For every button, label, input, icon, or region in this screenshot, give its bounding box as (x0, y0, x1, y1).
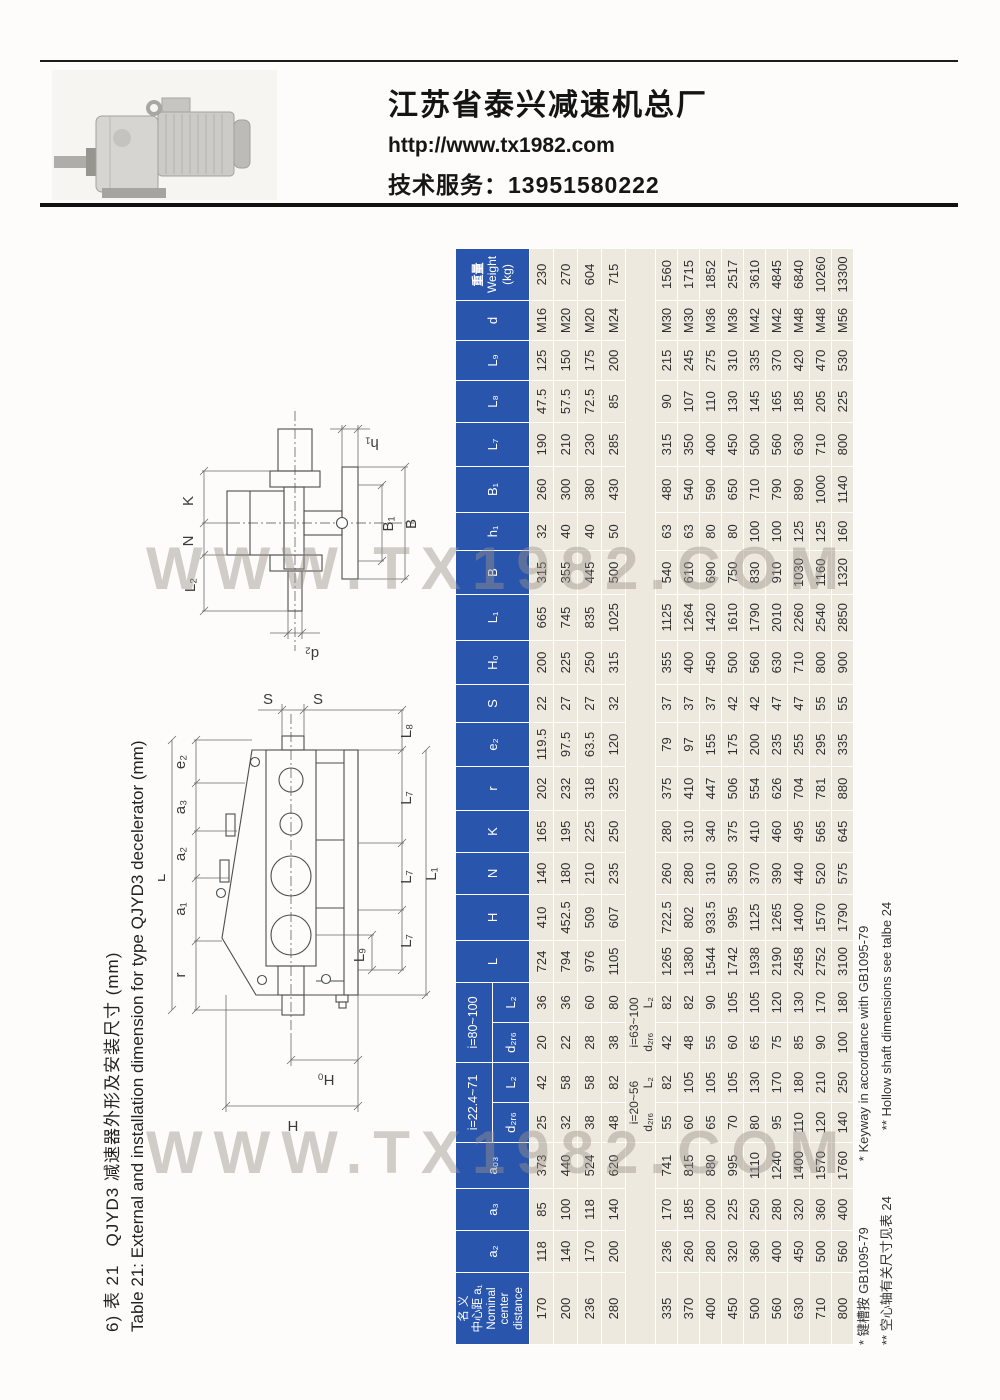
data-cell: 620 (602, 1143, 626, 1189)
data-cell: 1570 (810, 894, 832, 940)
data-cell: 560 (744, 640, 766, 684)
data-cell: 610 (678, 550, 700, 594)
data-cell: 65 (744, 1022, 766, 1062)
data-cell: 260 (656, 852, 678, 894)
data-cell: 200 (744, 722, 766, 766)
dim-label-K: K (180, 496, 197, 506)
data-cell: 110 (788, 1103, 810, 1143)
data-cell: 1030 (788, 550, 810, 594)
data-cell: 118 (578, 1189, 602, 1231)
column-header: H (456, 894, 530, 940)
data-cell: M36 (700, 300, 722, 340)
data-cell: 626 (766, 766, 788, 810)
data-cell: 802 (678, 894, 700, 940)
data-cell: 310 (678, 810, 700, 852)
data-cell: 440 (554, 1143, 578, 1189)
data-cell: 650 (722, 466, 744, 512)
data-cell: 125 (788, 512, 810, 550)
service-phone-label: 技术服务： (388, 172, 508, 198)
data-cell: 36 (530, 982, 554, 1022)
footnote-1: * 键槽按 GB1095-79* Keyway in accordance wi… (853, 645, 872, 1345)
data-cell: 794 (554, 940, 578, 982)
row-header-cell: 170 (530, 1273, 554, 1345)
data-cell: 65 (700, 1103, 722, 1143)
company-block: 江苏省泰兴减速机总厂 http://www.tx1982.com 技术服务：13… (388, 80, 948, 200)
data-cell: 900 (832, 640, 854, 684)
data-cell: 1125 (744, 894, 766, 940)
data-cell: 360 (744, 1231, 766, 1273)
data-cell: 235 (602, 852, 626, 894)
data-cell: 55 (700, 1022, 722, 1062)
data-cell: 445 (578, 550, 602, 594)
data-cell: 575 (832, 852, 854, 894)
data-cell: 80 (700, 512, 722, 550)
data-cell: 55 (810, 684, 832, 722)
gearmotor-photo (52, 70, 277, 200)
data-cell: 400 (832, 1189, 854, 1231)
data-cell: 335 (744, 340, 766, 380)
data-cell: 4845 (766, 248, 788, 300)
data-cell: 37 (678, 684, 700, 722)
data-cell: 722.5 (656, 894, 678, 940)
data-cell: 22 (530, 684, 554, 722)
data-cell: 340 (700, 810, 722, 852)
data-cell: 140 (602, 1189, 626, 1231)
data-cell: 2458 (788, 940, 810, 982)
data-cell: 590 (700, 466, 722, 512)
data-cell: 2517 (722, 248, 744, 300)
data-cell: 410 (678, 766, 700, 810)
data-cell: 20 (530, 1022, 554, 1062)
data-cell: M24 (602, 300, 626, 340)
table-caption-en: Table 21: External and installation dime… (128, 462, 148, 1332)
data-cell: 3100 (832, 940, 854, 982)
data-cell: 995 (722, 894, 744, 940)
company-name: 江苏省泰兴减速机总厂 (388, 80, 948, 124)
dim-label-L8: L₈ (398, 724, 415, 739)
data-cell: 350 (678, 422, 700, 466)
data-cell: 225 (832, 380, 854, 422)
data-cell: 781 (810, 766, 832, 810)
data-cell: 410 (530, 894, 554, 940)
data-cell: 524 (578, 1143, 602, 1189)
data-cell: 60 (678, 1103, 700, 1143)
data-cell: 118 (530, 1231, 554, 1273)
column-header: B (456, 550, 530, 594)
data-cell: 280 (678, 852, 700, 894)
data-cell: 245 (678, 340, 700, 380)
data-cell: 310 (700, 852, 722, 894)
dim-label-S1: S (263, 691, 273, 708)
data-cell: M48 (810, 300, 832, 340)
data-cell: 100 (744, 512, 766, 550)
data-cell: 350 (722, 852, 744, 894)
data-cell: 410 (744, 810, 766, 852)
separator-group-cell: i=63~100d₂ᵣ₆L₂ (626, 982, 656, 1062)
data-cell: 85 (788, 1022, 810, 1062)
data-cell: 200 (602, 1231, 626, 1273)
data-cell: 500 (810, 1231, 832, 1273)
data-cell: 95 (766, 1103, 788, 1143)
data-cell: 85 (602, 380, 626, 422)
data-cell: 270 (554, 248, 578, 300)
data-cell: 1380 (678, 940, 700, 982)
separator-cell (626, 248, 656, 982)
dim-label-L7a: L₇ (398, 791, 415, 805)
ratio-group-header: i=80~100 (456, 982, 493, 1062)
data-cell: 185 (678, 1189, 700, 1231)
column-header: S (456, 684, 530, 722)
data-cell: 506 (722, 766, 744, 810)
data-cell: 125 (530, 340, 554, 380)
corner-header: 名 义中心距 a₁Nominalcenterdistance (456, 1273, 530, 1345)
data-cell: 37 (656, 684, 678, 722)
data-cell: 75 (766, 1022, 788, 1062)
weight-header: 重量Weight(kg) (456, 248, 530, 300)
data-cell: 470 (810, 340, 832, 380)
data-cell: 460 (766, 810, 788, 852)
data-cell: 250 (578, 640, 602, 684)
data-cell: 225 (554, 640, 578, 684)
row-header-cell: 710 (810, 1273, 832, 1345)
data-cell: 1420 (700, 594, 722, 640)
data-cell: 1400 (788, 1143, 810, 1189)
data-cell: 910 (766, 550, 788, 594)
ratio-group-header: i=22.4~71 (456, 1062, 493, 1142)
data-cell: 70 (722, 1103, 744, 1143)
data-cell: 47 (788, 684, 810, 722)
row-header-cell: 450 (722, 1273, 744, 1345)
data-cell: 480 (656, 466, 678, 512)
dim-label-d2: d₂ (305, 645, 319, 662)
data-cell: 1000 (810, 466, 832, 512)
data-cell: 47 (766, 684, 788, 722)
company-logo (52, 70, 277, 200)
dim-label-B1: B₁ (380, 516, 397, 531)
data-cell: 60 (578, 982, 602, 1022)
data-cell: 665 (530, 594, 554, 640)
data-cell: 630 (766, 640, 788, 684)
data-cell: M20 (578, 300, 602, 340)
data-cell: 38 (578, 1103, 602, 1143)
data-cell: 1852 (700, 248, 722, 300)
data-cell: 830 (744, 550, 766, 594)
data-cell: 320 (788, 1189, 810, 1231)
data-cell: 933.5 (700, 894, 722, 940)
data-cell: 190 (530, 422, 554, 466)
data-cell: 400 (700, 422, 722, 466)
data-cell: 130 (744, 1062, 766, 1102)
dim-label-L7c: L₇ (398, 934, 415, 948)
data-cell: 604 (578, 248, 602, 300)
data-cell: 320 (722, 1231, 744, 1273)
data-cell: 57.5 (554, 380, 578, 422)
dim-label-a2: a₂ (172, 847, 189, 861)
data-cell: 100 (832, 1022, 854, 1062)
data-cell: 1790 (744, 594, 766, 640)
data-cell: 1320 (832, 550, 854, 594)
footnote-1-zh: * 键槽按 GB1095-79 (856, 1227, 871, 1345)
data-cell: 318 (578, 766, 602, 810)
data-cell: 315 (530, 550, 554, 594)
header-rule-top (40, 60, 958, 62)
data-cell: 880 (832, 766, 854, 810)
column-header: L (456, 940, 530, 982)
data-cell: 205 (810, 380, 832, 422)
data-cell: 58 (578, 1062, 602, 1102)
data-cell: 140 (832, 1103, 854, 1143)
data-cell: 1105 (602, 940, 626, 982)
data-cell: 380 (578, 466, 602, 512)
data-cell: 275 (700, 340, 722, 380)
data-cell: 315 (602, 640, 626, 684)
data-cell: 565 (810, 810, 832, 852)
data-cell: 630 (788, 422, 810, 466)
data-cell: 22 (554, 1022, 578, 1062)
data-cell: 63.5 (578, 722, 602, 766)
data-cell: 1790 (832, 894, 854, 940)
data-cell: 180 (554, 852, 578, 894)
column-header: a₀₃ (456, 1143, 530, 1189)
data-cell: 47.5 (530, 380, 554, 422)
data-cell: 155 (700, 722, 722, 766)
data-cell: 1025 (602, 594, 626, 640)
data-cell: 230 (578, 422, 602, 466)
data-cell: 800 (832, 422, 854, 466)
data-cell: 554 (744, 766, 766, 810)
data-cell: 170 (766, 1062, 788, 1102)
data-cell: 710 (810, 422, 832, 466)
data-cell: 295 (810, 722, 832, 766)
data-cell: 710 (744, 466, 766, 512)
column-header: L₉ (456, 340, 530, 380)
dim-label-B: B (403, 519, 420, 529)
data-cell: 200 (530, 640, 554, 684)
data-cell: 100 (766, 512, 788, 550)
data-cell: 540 (678, 466, 700, 512)
data-cell: M30 (656, 300, 678, 340)
data-cell: 165 (766, 380, 788, 422)
data-cell: 180 (832, 982, 854, 1022)
data-cell: 210 (578, 852, 602, 894)
data-cell: 37 (700, 684, 722, 722)
dim-label-L7b: L₇ (398, 870, 415, 884)
data-cell: 375 (656, 766, 678, 810)
data-cell: 500 (722, 640, 744, 684)
data-cell: 170 (656, 1189, 678, 1231)
data-cell: 38 (602, 1022, 626, 1062)
data-cell: 704 (788, 766, 810, 810)
data-cell: M42 (766, 300, 788, 340)
data-cell: 1240 (766, 1143, 788, 1189)
data-cell: M16 (530, 300, 554, 340)
data-cell: 995 (722, 1143, 744, 1189)
data-cell: 130 (722, 380, 744, 422)
data-cell: 50 (602, 512, 626, 550)
dim-label-L1: L₁ (423, 867, 440, 880)
data-cell: 815 (678, 1143, 700, 1189)
data-cell: 447 (700, 766, 722, 810)
data-cell: 540 (656, 550, 678, 594)
data-cell: 450 (788, 1231, 810, 1273)
row-header-cell: 200 (554, 1273, 578, 1345)
data-cell: 280 (656, 810, 678, 852)
dimension-table-area: 名 义中心距 a₁Nominalcenterdistancea₂a₃a₀₃i=2… (455, 250, 852, 1345)
data-cell: 835 (578, 594, 602, 640)
data-cell: 1140 (832, 466, 854, 512)
data-cell: 225 (722, 1189, 744, 1231)
data-cell: 119.5 (530, 722, 554, 766)
data-cell: 27 (554, 684, 578, 722)
row-header-cell: 400 (700, 1273, 722, 1345)
data-cell: 55 (832, 684, 854, 722)
data-cell: 175 (722, 722, 744, 766)
dim-label-a1: a₁ (172, 902, 189, 915)
data-cell: 32 (530, 512, 554, 550)
data-cell: 355 (656, 640, 678, 684)
data-cell: 724 (530, 940, 554, 982)
data-cell: 55 (656, 1103, 678, 1143)
data-cell: 48 (602, 1103, 626, 1143)
data-cell: 310 (722, 340, 744, 380)
data-cell: 690 (700, 550, 722, 594)
data-cell: 236 (656, 1231, 678, 1273)
data-cell: 2190 (766, 940, 788, 982)
data-cell: 280 (700, 1231, 722, 1273)
data-cell: 63 (678, 512, 700, 550)
data-cell: 100 (554, 1189, 578, 1231)
data-cell: 140 (530, 852, 554, 894)
sub-column-header: d₂ᵣ₆ (493, 1103, 530, 1143)
data-cell: M42 (744, 300, 766, 340)
data-cell: 495 (788, 810, 810, 852)
footnote-2-en: ** Hollow shaft dimensions see talbe 24 (879, 902, 894, 1130)
data-cell: M36 (722, 300, 744, 340)
data-cell: 355 (554, 550, 578, 594)
data-cell: 28 (578, 1022, 602, 1062)
dim-label-a3: a₃ (172, 800, 189, 814)
header-rule-bottom (40, 203, 958, 207)
data-cell: 715 (602, 248, 626, 300)
data-cell: 360 (810, 1189, 832, 1231)
data-cell: 1560 (656, 248, 678, 300)
data-cell: 500 (744, 422, 766, 466)
row-header-cell: 800 (832, 1273, 854, 1345)
service-phone-number: 13951580222 (508, 172, 660, 198)
data-cell: 105 (744, 982, 766, 1022)
data-cell: 2850 (832, 594, 854, 640)
data-cell: 42 (722, 684, 744, 722)
data-cell: 27 (578, 684, 602, 722)
data-cell: 90 (810, 1022, 832, 1062)
data-cell: 232 (554, 766, 578, 810)
side-view-drawing: S S e₂ a₃ a₂ a₁ r L L₈ L₇ L₇ L₇ L₁ L₉ H₀… (158, 688, 460, 1158)
data-cell: 800 (810, 640, 832, 684)
data-cell: 120 (766, 982, 788, 1022)
column-header: L₈ (456, 380, 530, 422)
data-cell: 80 (722, 512, 744, 550)
data-cell: 80 (744, 1103, 766, 1143)
data-cell: M30 (678, 300, 700, 340)
data-cell: 180 (788, 1062, 810, 1102)
data-cell: M20 (554, 300, 578, 340)
data-cell: 420 (788, 340, 810, 380)
row-header-cell: 280 (602, 1273, 626, 1345)
data-cell: 400 (766, 1231, 788, 1273)
data-cell: 225 (578, 810, 602, 852)
data-cell: 13300 (832, 248, 854, 300)
data-cell: 255 (788, 722, 810, 766)
column-header: e₂ (456, 722, 530, 766)
data-cell: 200 (602, 340, 626, 380)
column-header: L₇ (456, 422, 530, 466)
data-cell: 375 (722, 810, 744, 852)
data-cell: 110 (700, 380, 722, 422)
column-header: h₁ (456, 512, 530, 550)
data-cell: 202 (530, 766, 554, 810)
row-header-cell: 335 (656, 1273, 678, 1345)
dim-label-H0: H₀ (317, 1071, 334, 1088)
data-cell: 175 (578, 340, 602, 380)
data-cell: 1265 (656, 940, 678, 982)
dim-label-N: N (180, 536, 197, 547)
data-cell: 130 (788, 982, 810, 1022)
data-cell: 72.5 (578, 380, 602, 422)
dimension-table: 名 义中心距 a₁Nominalcenterdistancea₂a₃a₀₃i=2… (455, 248, 854, 1345)
data-cell: 90 (656, 380, 678, 422)
table-caption: 6) 表 21 QJYD3 减速器外形及安装尺寸 (mm) Table 21: … (98, 462, 148, 1332)
data-cell: 260 (678, 1231, 700, 1273)
data-cell: 82 (602, 1062, 626, 1102)
data-cell: 63 (656, 512, 678, 550)
data-cell: 25 (530, 1103, 554, 1143)
data-cell: 373 (530, 1143, 554, 1189)
data-cell: 165 (530, 810, 554, 852)
dim-label-L: L (158, 874, 169, 882)
column-header: K (456, 810, 530, 852)
data-cell: 1938 (744, 940, 766, 982)
data-cell: 82 (656, 982, 678, 1022)
column-header: r (456, 766, 530, 810)
data-cell: 32 (554, 1103, 578, 1143)
data-cell: 215 (656, 340, 678, 380)
table-caption-zh: 6) 表 21 QJYD3 减速器外形及安装尺寸 (mm) (98, 462, 123, 1332)
data-cell: 82 (656, 1062, 678, 1102)
data-cell: 250 (602, 810, 626, 852)
column-header: N (456, 852, 530, 894)
service-phone: 技术服务：13951580222 (388, 166, 948, 200)
data-cell: 97 (678, 722, 700, 766)
data-cell: 85 (530, 1189, 554, 1231)
data-cell: 36 (554, 982, 578, 1022)
data-cell: 170 (810, 982, 832, 1022)
sub-column-header: L₂ (493, 1062, 530, 1102)
data-cell: 105 (700, 1062, 722, 1102)
separator-group-cell: i=20~56d₂ᵣ₆L₂ (626, 1062, 656, 1142)
data-cell: 97.5 (554, 722, 578, 766)
separator-cell (626, 1143, 656, 1345)
data-cell: 430 (602, 466, 626, 512)
data-cell: 560 (766, 422, 788, 466)
data-cell: 230 (530, 248, 554, 300)
column-header: d (456, 300, 530, 340)
dim-label-r: r (172, 973, 189, 978)
column-header: a₃ (456, 1189, 530, 1231)
row-header-cell: 560 (766, 1273, 788, 1345)
data-cell: 1544 (700, 940, 722, 982)
data-cell: 520 (810, 852, 832, 894)
data-cell: 40 (554, 512, 578, 550)
